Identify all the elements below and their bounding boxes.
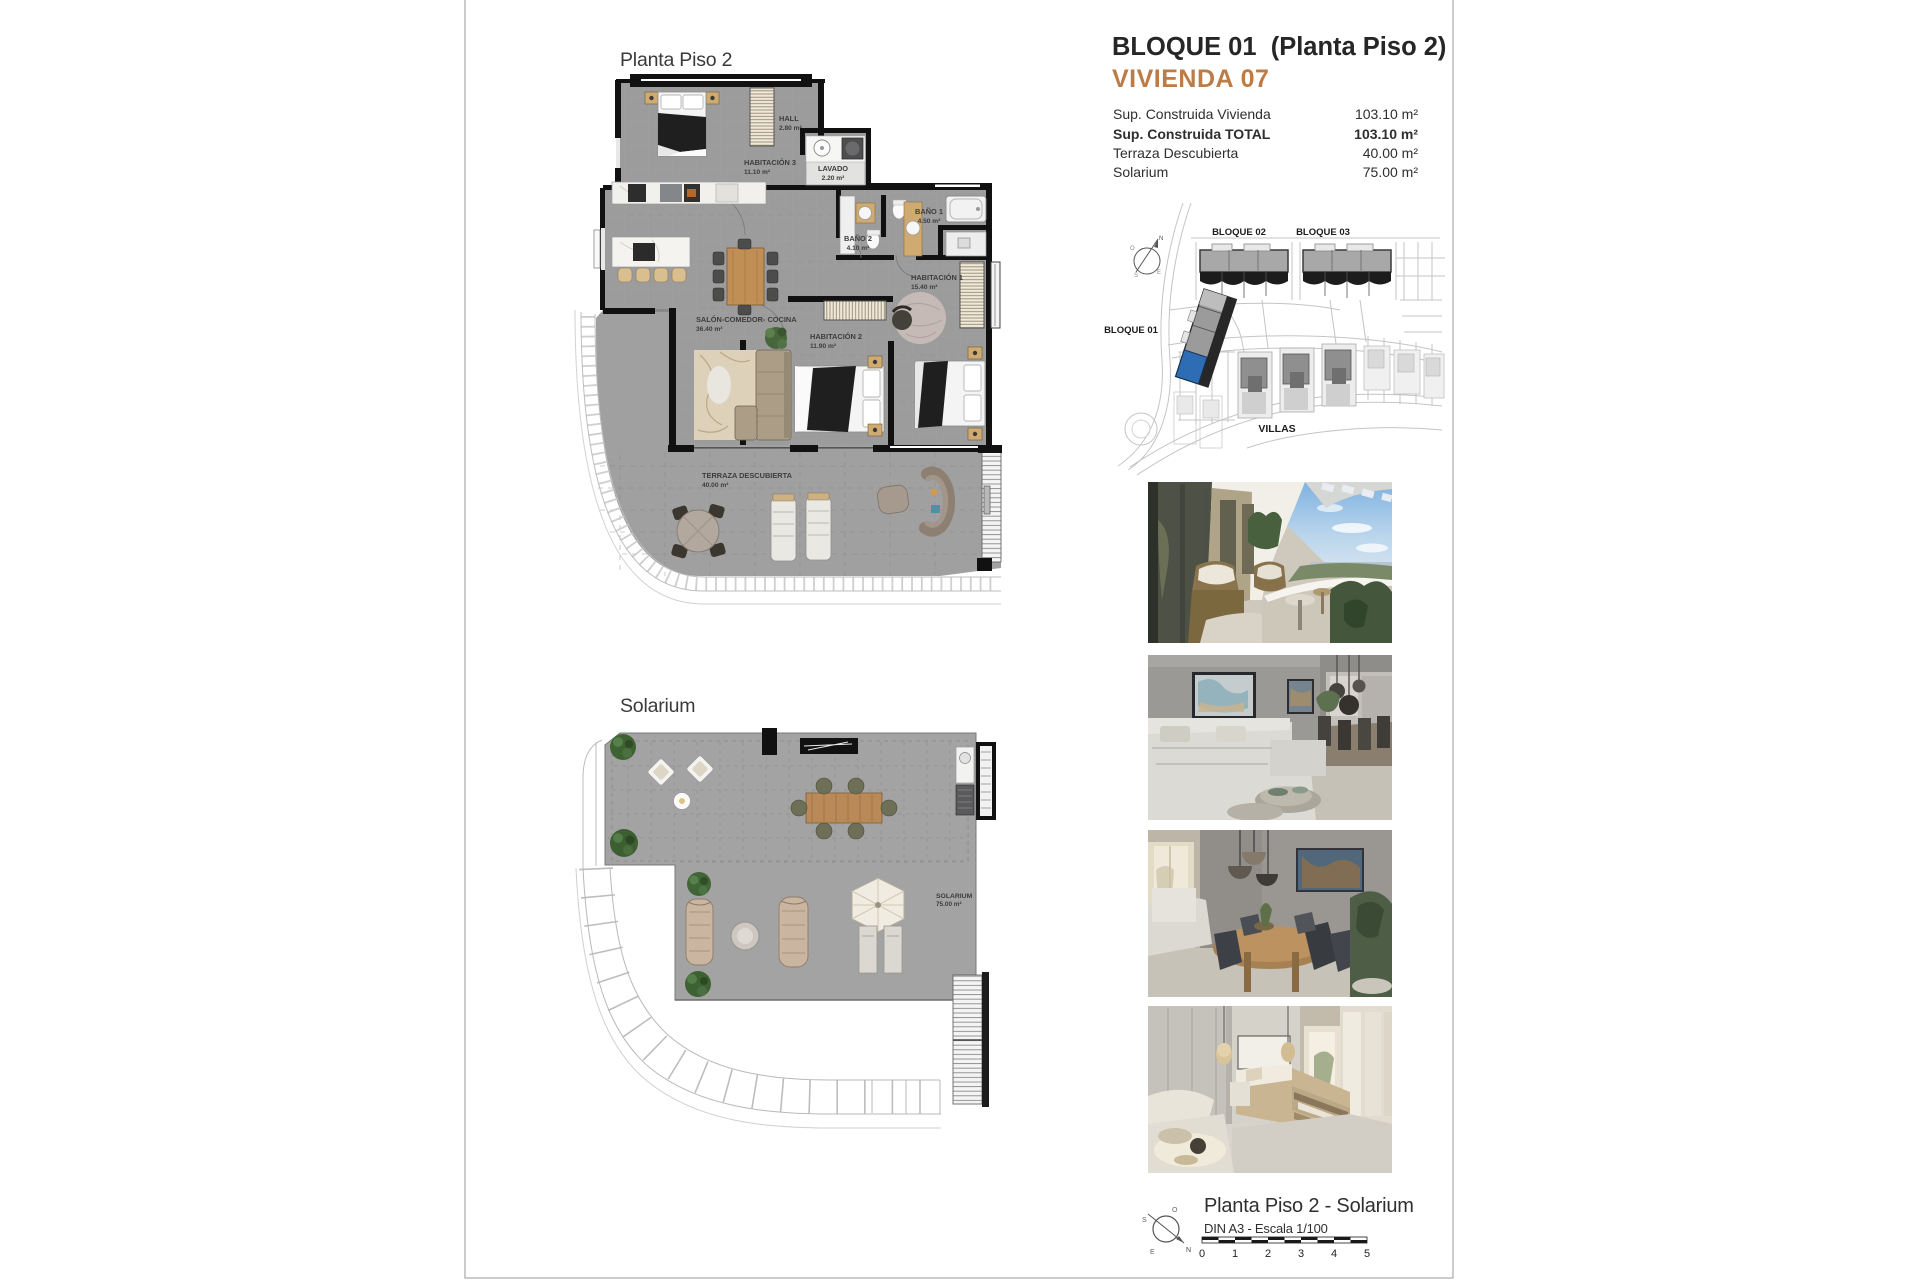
svg-text:40.00 m²: 40.00 m² bbox=[1363, 145, 1419, 161]
svg-text:BLOQUE 01 (Planta Piso 2): BLOQUE 01 (Planta Piso 2) bbox=[1112, 33, 1446, 61]
svg-text:4.10 m²: 4.10 m² bbox=[847, 245, 871, 252]
svg-text:103.10 m²: 103.10 m² bbox=[1355, 106, 1418, 122]
svg-text:Sup. Construida Vivienda: Sup. Construida Vivienda bbox=[1113, 106, 1271, 122]
svg-text:2: 2 bbox=[1265, 1248, 1271, 1260]
svg-text:S: S bbox=[1142, 1217, 1147, 1224]
svg-text:40.00 m²: 40.00 m² bbox=[702, 482, 729, 489]
svg-text:Solarium: Solarium bbox=[620, 695, 695, 717]
svg-text:HABITACIÓN 3: HABITACIÓN 3 bbox=[744, 158, 796, 167]
svg-text:Terraza Descubierta: Terraza Descubierta bbox=[1113, 145, 1238, 161]
svg-text:2.20 m²: 2.20 m² bbox=[822, 175, 846, 182]
svg-text:Solarium: Solarium bbox=[1113, 164, 1168, 180]
svg-text:N: N bbox=[1186, 1247, 1191, 1254]
svg-text:0: 0 bbox=[1199, 1248, 1205, 1260]
svg-text:O: O bbox=[1130, 246, 1135, 252]
svg-text:BAÑO 1: BAÑO 1 bbox=[915, 207, 943, 216]
svg-text:HABITACIÓN 2: HABITACIÓN 2 bbox=[810, 332, 862, 341]
svg-text:BAÑO 2: BAÑO 2 bbox=[844, 234, 872, 243]
svg-text:2.80 m²: 2.80 m² bbox=[779, 125, 803, 132]
svg-text:SALÓN-COMEDOR- COCINA: SALÓN-COMEDOR- COCINA bbox=[696, 315, 797, 324]
svg-text:15.40 m²: 15.40 m² bbox=[911, 284, 938, 291]
svg-text:BLOQUE 02: BLOQUE 02 bbox=[1212, 227, 1266, 238]
svg-text:4: 4 bbox=[1331, 1248, 1337, 1260]
svg-text:S: S bbox=[1134, 273, 1138, 279]
svg-text:75.00 m²: 75.00 m² bbox=[936, 901, 962, 908]
svg-text:BLOQUE 01: BLOQUE 01 bbox=[1104, 325, 1159, 336]
svg-text:SOLARIUM: SOLARIUM bbox=[936, 893, 973, 900]
svg-text:DIN A3 - Escala 1/100: DIN A3 - Escala 1/100 bbox=[1204, 1221, 1328, 1236]
svg-text:HABITACIÓN 1: HABITACIÓN 1 bbox=[911, 273, 963, 282]
svg-text:75.00 m²: 75.00 m² bbox=[1363, 164, 1419, 180]
svg-text:BLOQUE 03: BLOQUE 03 bbox=[1296, 227, 1350, 238]
svg-text:5: 5 bbox=[1364, 1248, 1370, 1260]
svg-text:11.90 m²: 11.90 m² bbox=[810, 343, 837, 350]
svg-text:VILLAS: VILLAS bbox=[1258, 423, 1295, 435]
svg-text:3: 3 bbox=[1298, 1248, 1304, 1260]
svg-text:1: 1 bbox=[1232, 1248, 1238, 1260]
svg-text:E: E bbox=[1157, 270, 1161, 276]
svg-text:LAVADO: LAVADO bbox=[818, 164, 848, 173]
svg-text:N: N bbox=[1159, 236, 1163, 242]
svg-text:E: E bbox=[1150, 1249, 1155, 1256]
svg-text:Planta Piso 2 - Solarium: Planta Piso 2 - Solarium bbox=[1204, 1195, 1414, 1217]
svg-text:Sup. Construida TOTAL: Sup. Construida TOTAL bbox=[1113, 126, 1271, 142]
svg-text:VIVIENDA 07: VIVIENDA 07 bbox=[1112, 65, 1269, 93]
svg-text:Planta Piso 2: Planta Piso 2 bbox=[620, 49, 732, 71]
svg-text:4.50 m²: 4.50 m² bbox=[918, 218, 942, 225]
svg-text:TERRAZA DESCUBIERTA: TERRAZA DESCUBIERTA bbox=[702, 471, 793, 480]
svg-text:O: O bbox=[1172, 1207, 1178, 1214]
svg-text:36.40 m²: 36.40 m² bbox=[696, 326, 723, 333]
svg-text:11.10 m²: 11.10 m² bbox=[744, 169, 771, 176]
svg-text:103.10 m²: 103.10 m² bbox=[1354, 126, 1418, 142]
svg-text:HALL: HALL bbox=[779, 114, 799, 123]
